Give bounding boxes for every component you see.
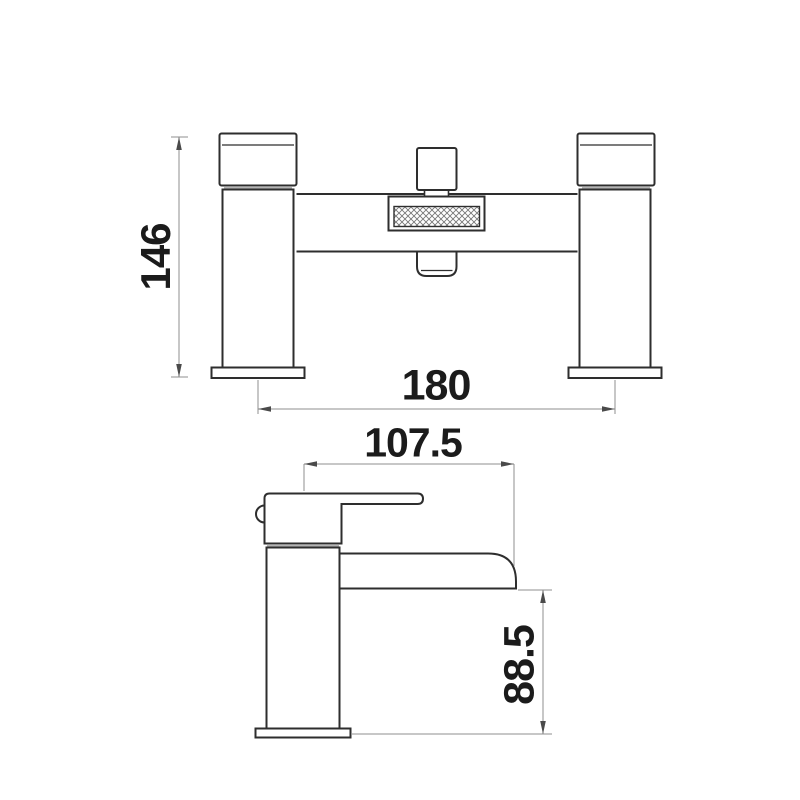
basin-tap-side-view — [256, 494, 517, 738]
handle-indicator-bump — [256, 506, 265, 523]
reach-dimension-label: 107.5 — [364, 423, 462, 464]
waterfall-spout — [330, 554, 516, 589]
width-dimension-label: 180 — [402, 365, 471, 408]
height-dimension-label: 146 — [135, 223, 177, 290]
hose-outlet-hatch-box — [389, 197, 485, 231]
spout-height-dimension-label: 88.5 — [499, 625, 542, 705]
right-pillar — [569, 134, 662, 379]
tap-base-plate — [256, 729, 351, 738]
left-pillar — [212, 134, 305, 379]
diverter-knob — [417, 148, 457, 197]
bath-mixer-front-view — [212, 134, 662, 379]
tap-line-art — [0, 0, 800, 800]
lever-handle — [265, 494, 424, 544]
tap-body-column — [267, 548, 340, 729]
tub-spout — [417, 253, 457, 277]
technical-drawing-canvas: 146 180 107.5 88.5 — [0, 0, 800, 800]
